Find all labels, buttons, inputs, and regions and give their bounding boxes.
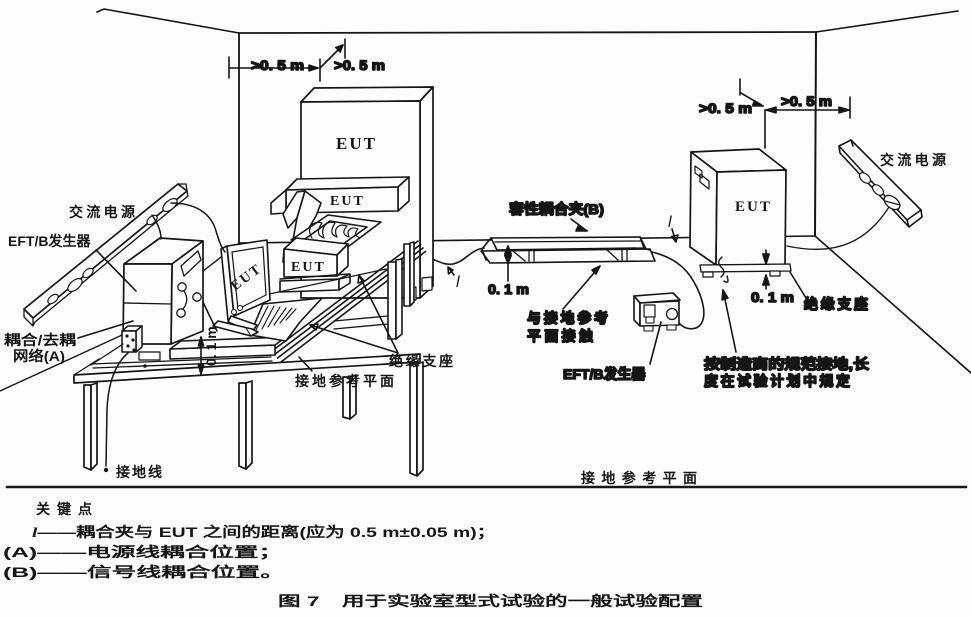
svg-text:接地线: 接地线	[116, 464, 162, 480]
svg-text:图 7 用于实验室型式试验的一般试验配置: 图 7 用于实验室型式试验的一般试验配置	[278, 593, 703, 609]
svg-text:网络(A): 网络(A)	[13, 348, 65, 364]
svg-text:与接地参考: 与接地参考	[527, 310, 608, 326]
svg-text:l——耦合夹与 EUT 之间的距离(应为 0.5 m±0.0: l——耦合夹与 EUT 之间的距离(应为 0.5 m±0.05 m)；	[32, 524, 496, 541]
svg-text:度在试验计划中规定: 度在试验计划中规定	[704, 373, 850, 389]
svg-text:EUT: EUT	[735, 199, 772, 215]
svg-text:平面接触: 平面接触	[527, 328, 593, 344]
svg-text:接地参考平面: 接地参考平面	[581, 470, 697, 486]
svg-text:(A)——电源线耦合位置；: (A)——电源线耦合位置；	[3, 544, 283, 561]
svg-text:>0. 5 m: >0. 5 m	[699, 100, 752, 116]
svg-text:>0. 5 m: >0. 5 m	[251, 57, 304, 73]
svg-text:EFT/B发生器: EFT/B发生器	[8, 233, 91, 249]
svg-text:(B)——信号线耦合位置。: (B)——信号线耦合位置。	[3, 564, 285, 580]
svg-text:关键点: 关键点	[36, 501, 92, 517]
svg-text:EFT/B发生器: EFT/B发生器	[563, 366, 646, 382]
svg-text:容性耦合夹(B): 容性耦合夹(B)	[508, 201, 604, 217]
svg-text:0. 1 m: 0. 1 m	[751, 289, 794, 305]
svg-text:交流电源: 交流电源	[880, 152, 946, 168]
svg-text:EUT: EUT	[330, 194, 365, 209]
svg-text:按制造商的规范接地,长: 按制造商的规范接地,长	[704, 356, 870, 372]
svg-text:l: l	[456, 274, 460, 291]
svg-text:l: l	[668, 214, 672, 231]
svg-text:>0. 5 m: >0. 5 m	[334, 57, 385, 73]
svg-text:0. 1 m: 0. 1 m	[488, 281, 529, 297]
svg-text:EUT: EUT	[336, 134, 377, 153]
svg-text:交流电源: 交流电源	[69, 204, 135, 220]
svg-text:>0. 5 m: >0. 5 m	[781, 93, 832, 109]
svg-text:EUT: EUT	[291, 260, 326, 275]
svg-text:耦合/去耦: 耦合/去耦	[4, 332, 76, 348]
svg-text:0. 1 m: 0. 1 m	[203, 326, 219, 366]
svg-text:绝缘支座: 绝缘支座	[804, 296, 868, 312]
